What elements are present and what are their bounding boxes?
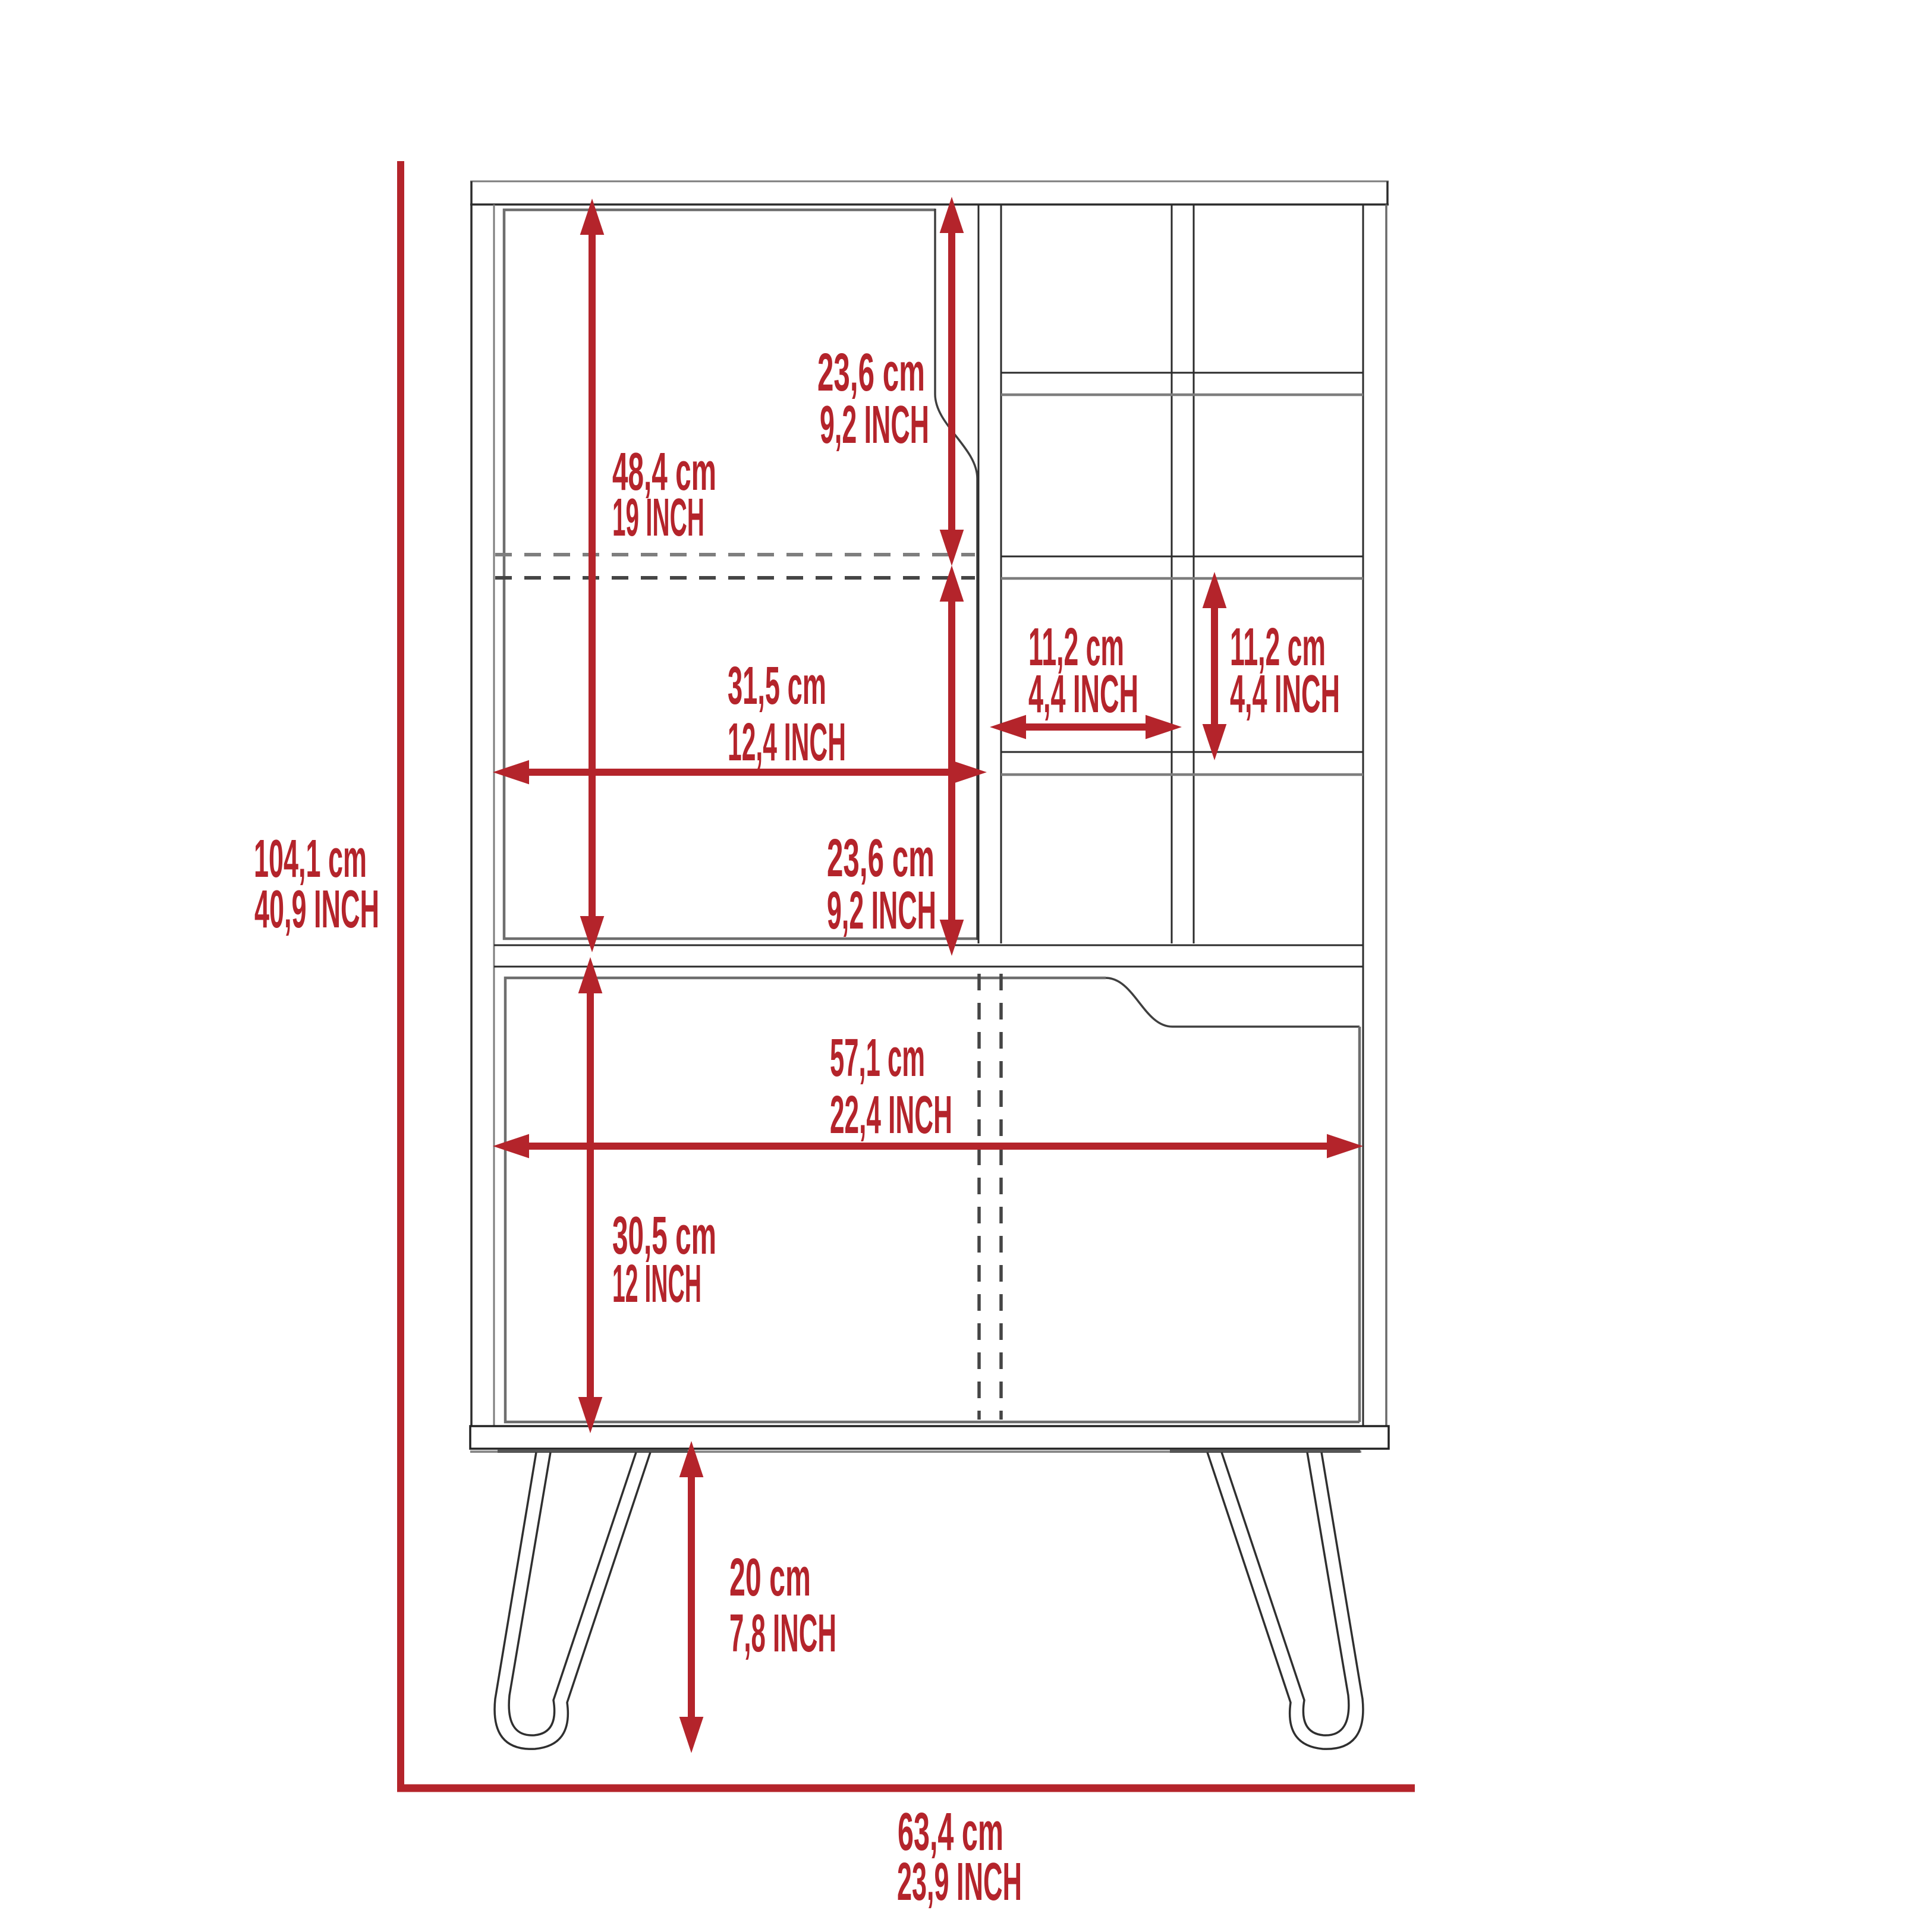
svg-text:4,4 INCH: 4,4 INCH bbox=[1028, 665, 1138, 724]
svg-text:22,4 INCH: 22,4 INCH bbox=[830, 1085, 952, 1145]
svg-text:12 INCH: 12 INCH bbox=[612, 1254, 701, 1314]
svg-text:9,2 INCH: 9,2 INCH bbox=[820, 395, 929, 455]
svg-text:31,5 cm: 31,5 cm bbox=[728, 656, 826, 716]
svg-text:4,4 INCH: 4,4 INCH bbox=[1230, 665, 1340, 724]
svg-text:23,6 cm: 23,6 cm bbox=[817, 343, 925, 402]
svg-text:23,9 INCH: 23,9 INCH bbox=[897, 1852, 1022, 1912]
svg-text:23,6 cm: 23,6 cm bbox=[827, 829, 934, 888]
svg-text:40,9 INCH: 40,9 INCH bbox=[254, 880, 379, 939]
svg-text:9,2 INCH: 9,2 INCH bbox=[827, 881, 936, 940]
svg-text:20 cm: 20 cm bbox=[729, 1548, 811, 1607]
svg-text:57,1 cm: 57,1 cm bbox=[830, 1028, 925, 1088]
svg-text:19 INCH: 19 INCH bbox=[612, 488, 704, 547]
svg-text:7,8 INCH: 7,8 INCH bbox=[729, 1604, 836, 1663]
svg-text:12,4 INCH: 12,4 INCH bbox=[728, 713, 846, 772]
